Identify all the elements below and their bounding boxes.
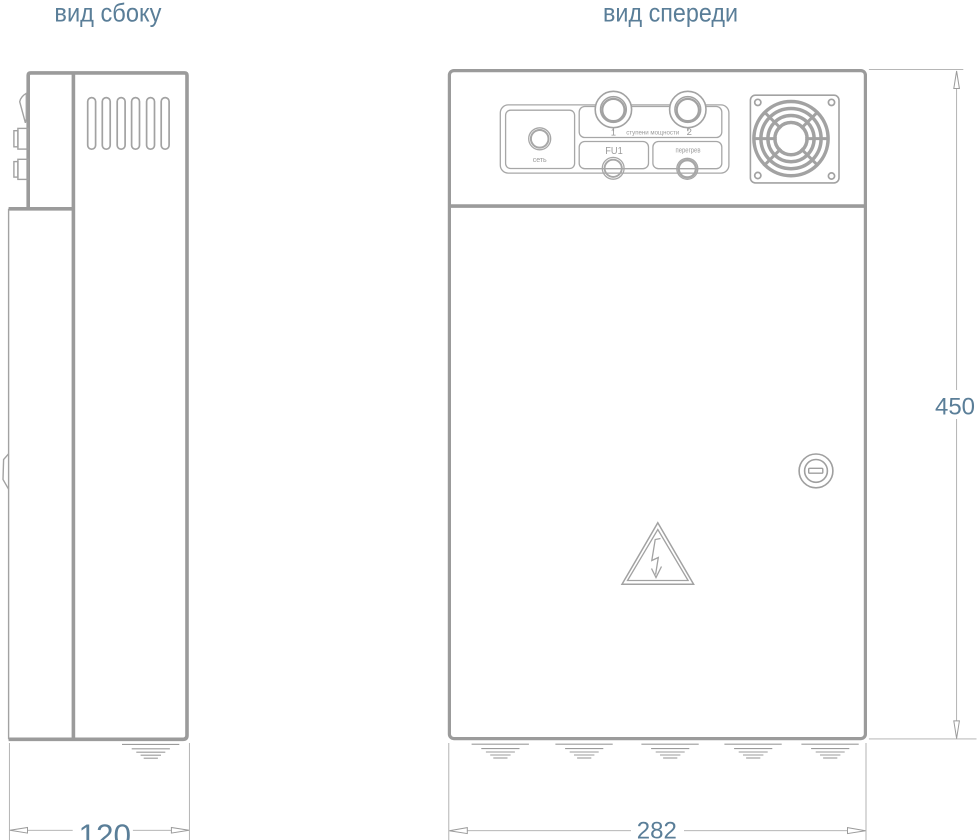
svg-text:1: 1 bbox=[611, 127, 616, 138]
svg-text:2: 2 bbox=[687, 127, 692, 138]
svg-text:450: 450 bbox=[935, 393, 975, 420]
svg-text:сеть: сеть bbox=[533, 157, 547, 164]
svg-text:перегрев: перегрев bbox=[676, 148, 701, 155]
svg-text:120: 120 bbox=[79, 817, 132, 840]
svg-text:FU1: FU1 bbox=[605, 145, 623, 157]
svg-text:вид сбоку: вид сбоку bbox=[54, 0, 161, 28]
svg-text:вид спереди: вид спереди bbox=[603, 0, 738, 28]
svg-text:ступени мощности: ступени мощности bbox=[626, 130, 679, 137]
svg-text:282: 282 bbox=[637, 818, 677, 840]
